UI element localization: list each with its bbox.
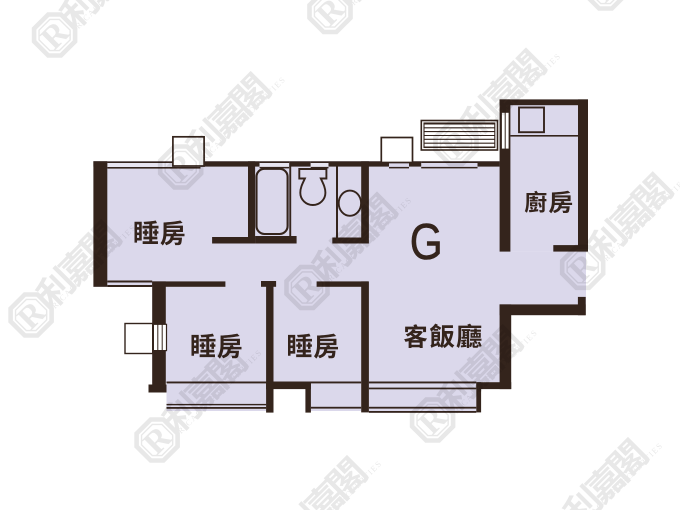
svg-text:G: G [410,212,443,270]
